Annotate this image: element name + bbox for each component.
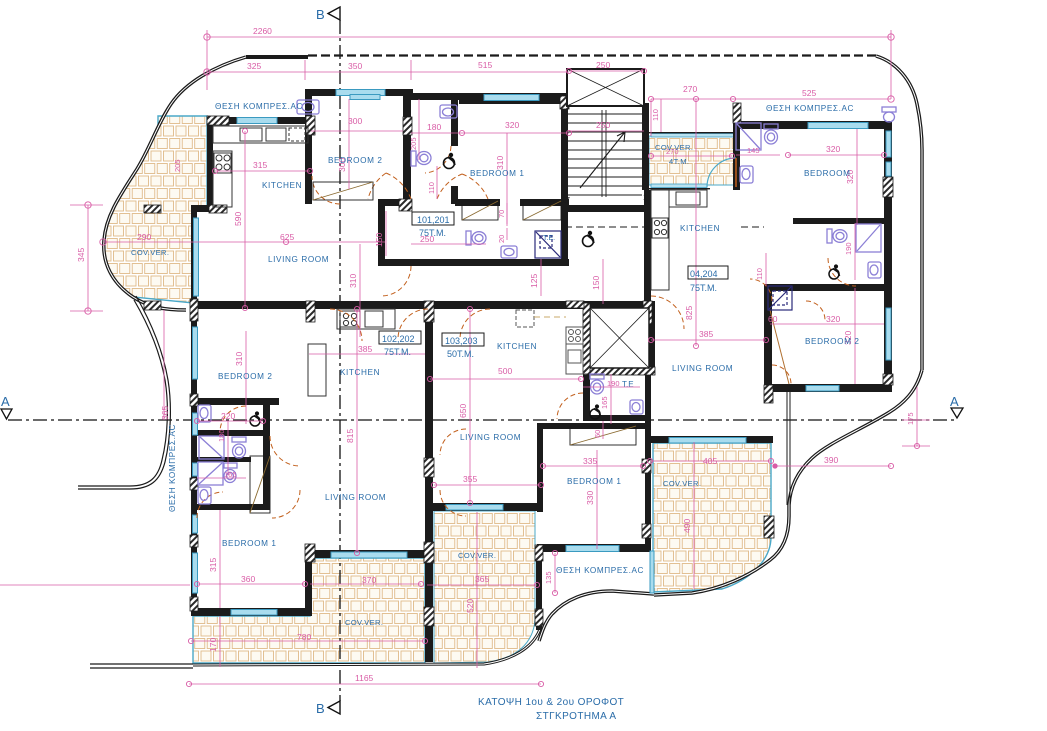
svg-text:170: 170 [208, 638, 218, 652]
svg-text:180: 180 [427, 122, 441, 132]
svg-text:KITCHEN: KITCHEN [262, 181, 302, 190]
svg-text:355: 355 [463, 474, 477, 484]
svg-text:17: 17 [561, 196, 570, 205]
svg-text:150: 150 [374, 233, 384, 247]
svg-text:60: 60 [768, 314, 778, 324]
svg-text:300: 300 [348, 116, 362, 126]
svg-text:250: 250 [596, 60, 610, 70]
svg-text:315: 315 [208, 558, 218, 572]
svg-text:320: 320 [826, 314, 840, 324]
svg-text:385: 385 [699, 329, 713, 339]
svg-text:KITCHEN: KITCHEN [680, 224, 720, 233]
svg-text:T.E: T.E [622, 380, 634, 389]
svg-text:190: 190 [607, 379, 620, 388]
svg-text:20: 20 [497, 235, 506, 243]
svg-text:ΘΕΣΗ ΚΟΜΠΡΕΣ.AC: ΘΕΣΗ ΚΟΜΠΡΕΣ.AC [168, 424, 177, 512]
svg-text:125: 125 [529, 274, 539, 288]
svg-text:BEDROOM 2: BEDROOM 2 [328, 156, 383, 165]
svg-text:T.E.: T.E. [543, 235, 555, 242]
svg-text:ΘΕΣΗ ΚΟΜΠΡΕΣ.AC: ΘΕΣΗ ΚΟΜΠΡΕΣ.AC [556, 566, 644, 575]
svg-text:145: 145 [747, 146, 760, 155]
svg-text:520: 520 [465, 599, 475, 613]
svg-text:BEDROOM 1: BEDROOM 1 [222, 539, 277, 548]
svg-text:COV.VER.: COV.VER. [663, 479, 701, 488]
svg-text:70: 70 [497, 210, 506, 218]
svg-text:B: B [316, 701, 325, 716]
svg-text:102,202: 102,202 [382, 334, 415, 344]
svg-text:490: 490 [682, 519, 692, 533]
svg-text:KITCHEN: KITCHEN [340, 368, 380, 377]
svg-text:270: 270 [683, 84, 697, 94]
svg-text:515: 515 [478, 60, 492, 70]
svg-text:350: 350 [348, 61, 362, 71]
svg-text:A: A [950, 394, 959, 409]
svg-text:405: 405 [703, 456, 717, 466]
svg-text:A: A [1, 394, 10, 409]
svg-text:101,201: 101,201 [417, 215, 450, 225]
svg-text:310: 310 [348, 274, 358, 288]
svg-text:50T.M.: 50T.M. [447, 349, 474, 359]
svg-text:ΚΑΤΟΨΗ 1ου & 2ου ΟΡΟΦΟΤ: ΚΑΤΟΨΗ 1ου & 2ου ΟΡΟΦΟΤ [478, 697, 624, 708]
svg-text:60: 60 [593, 430, 602, 438]
svg-text:75T.M.: 75T.M. [690, 283, 717, 293]
svg-text:165: 165 [600, 396, 609, 409]
svg-text:150: 150 [591, 276, 601, 290]
svg-text:360: 360 [241, 574, 255, 584]
svg-text:320: 320 [505, 120, 519, 130]
svg-text:365: 365 [475, 574, 489, 584]
svg-text:320: 320 [826, 144, 840, 154]
svg-text:290: 290 [137, 232, 151, 242]
svg-text:175: 175 [906, 412, 915, 425]
svg-text:04,204: 04,204 [690, 269, 718, 279]
svg-text:LIVING ROOM: LIVING ROOM [672, 364, 733, 373]
svg-text:780: 780 [297, 632, 311, 642]
svg-text:KITCHEN: KITCHEN [497, 342, 537, 351]
svg-text:390: 390 [824, 455, 838, 465]
svg-text:110: 110 [755, 268, 764, 280]
svg-text:205: 205 [173, 159, 182, 172]
svg-text:345: 345 [76, 248, 86, 262]
svg-text:825: 825 [684, 306, 694, 320]
svg-text:220: 220 [221, 411, 235, 421]
svg-text:110: 110 [427, 182, 436, 194]
svg-text:815: 815 [345, 429, 355, 443]
svg-text:1: 1 [643, 193, 648, 202]
svg-text:335: 335 [583, 456, 597, 466]
svg-text:330: 330 [585, 491, 595, 505]
svg-text:625: 625 [280, 232, 294, 242]
svg-text:250: 250 [596, 120, 610, 130]
svg-text:525: 525 [802, 88, 816, 98]
svg-text:LIVING ROOM: LIVING ROOM [460, 433, 521, 442]
svg-text:310: 310 [234, 352, 244, 366]
svg-text:190: 190 [844, 242, 853, 255]
svg-text:590: 590 [233, 212, 243, 226]
svg-text:165: 165 [224, 470, 237, 479]
svg-text:ΘΕΣΗ ΚΟΜΠΡΕΣ.AC: ΘΕΣΗ ΚΟΜΠΡΕΣ.AC [766, 104, 854, 113]
svg-text:LIVING ROOM: LIVING ROOM [325, 493, 386, 502]
svg-text:325: 325 [247, 61, 261, 71]
svg-text:310: 310 [495, 156, 505, 170]
svg-text:385: 385 [358, 344, 372, 354]
svg-text:205: 205 [409, 137, 418, 150]
svg-text:365: 365 [160, 406, 170, 420]
svg-text:ΣΤΓΚΡΟΤΗΜΑ Α: ΣΤΓΚΡΟΤΗΜΑ Α [536, 711, 616, 722]
svg-text:650: 650 [458, 404, 468, 418]
svg-text:COV.VER.: COV.VER. [131, 248, 169, 257]
svg-text:1165: 1165 [355, 673, 374, 683]
svg-text:2260: 2260 [253, 26, 272, 36]
svg-text:B: B [316, 7, 325, 22]
svg-text:BEDROOM: BEDROOM [804, 169, 851, 178]
svg-text:135: 135 [544, 571, 553, 584]
svg-text:103,203: 103,203 [445, 336, 478, 346]
svg-text:110: 110 [651, 109, 660, 121]
svg-text:315: 315 [253, 160, 267, 170]
svg-text:ΘΕΣΗ ΚΟΜΠΡΕΣ.AC: ΘΕΣΗ ΚΟΜΠΡΕΣ.AC [215, 102, 303, 111]
svg-text:COV.VER.: COV.VER. [458, 551, 496, 560]
svg-text:COV.VER.: COV.VER. [655, 143, 693, 152]
svg-text:COV.VER.: COV.VER. [345, 618, 383, 627]
svg-text:BEDROOM 2: BEDROOM 2 [218, 372, 273, 381]
svg-text:BEDROOM 2: BEDROOM 2 [805, 337, 860, 346]
svg-text:BEDROOM 1: BEDROOM 1 [567, 477, 622, 486]
svg-text:370: 370 [362, 575, 376, 585]
svg-text:75T.M.: 75T.M. [384, 347, 411, 357]
svg-text:500: 500 [498, 366, 512, 376]
svg-text:75T.M.: 75T.M. [419, 228, 446, 238]
svg-text:4T.M.: 4T.M. [669, 157, 689, 166]
svg-text:BEDROOM 1: BEDROOM 1 [470, 169, 525, 178]
svg-text:LIVING ROOM: LIVING ROOM [268, 255, 329, 264]
svg-text:180: 180 [217, 429, 226, 442]
